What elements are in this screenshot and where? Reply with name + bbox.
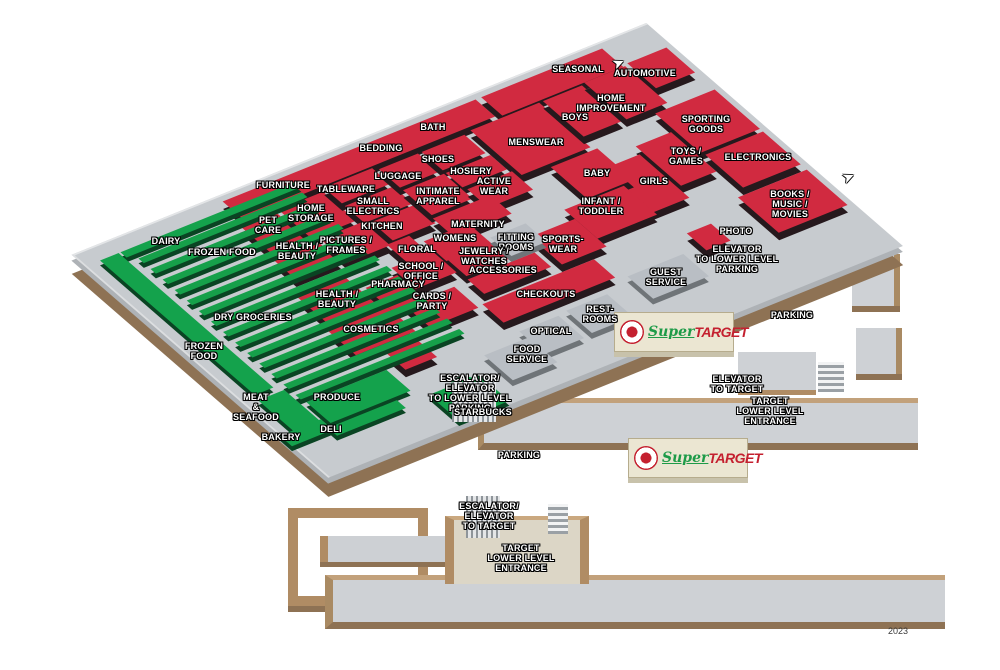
lower-parking-drive <box>325 575 945 629</box>
supertarget-sign: Super TARGET <box>614 312 734 352</box>
label-parking: PARKING <box>771 311 813 321</box>
stairs-icon <box>818 362 844 392</box>
lower-drive-end <box>856 328 902 374</box>
escalator-icon <box>452 382 496 422</box>
target-bullseye-icon <box>634 446 658 470</box>
sign-super-word: Super <box>648 324 694 340</box>
target-bullseye-icon <box>620 320 644 344</box>
sign-super-word: Super <box>662 450 708 466</box>
label-parking: PARKING <box>498 451 540 461</box>
map-year: 2023 <box>888 626 908 636</box>
sign-target-word: TARGET <box>694 324 748 340</box>
drive-connector <box>738 352 816 390</box>
escalator-icon <box>466 496 500 538</box>
stairs-icon <box>548 504 568 534</box>
sign-target-word: TARGET <box>708 450 762 466</box>
supertarget-store-map: Super TARGET Super TARGET DAIRYFROZEN FO… <box>0 0 1000 670</box>
entrance-arrow-icon: ➤ <box>839 166 858 187</box>
supertarget-sign: Super TARGET <box>628 438 748 478</box>
